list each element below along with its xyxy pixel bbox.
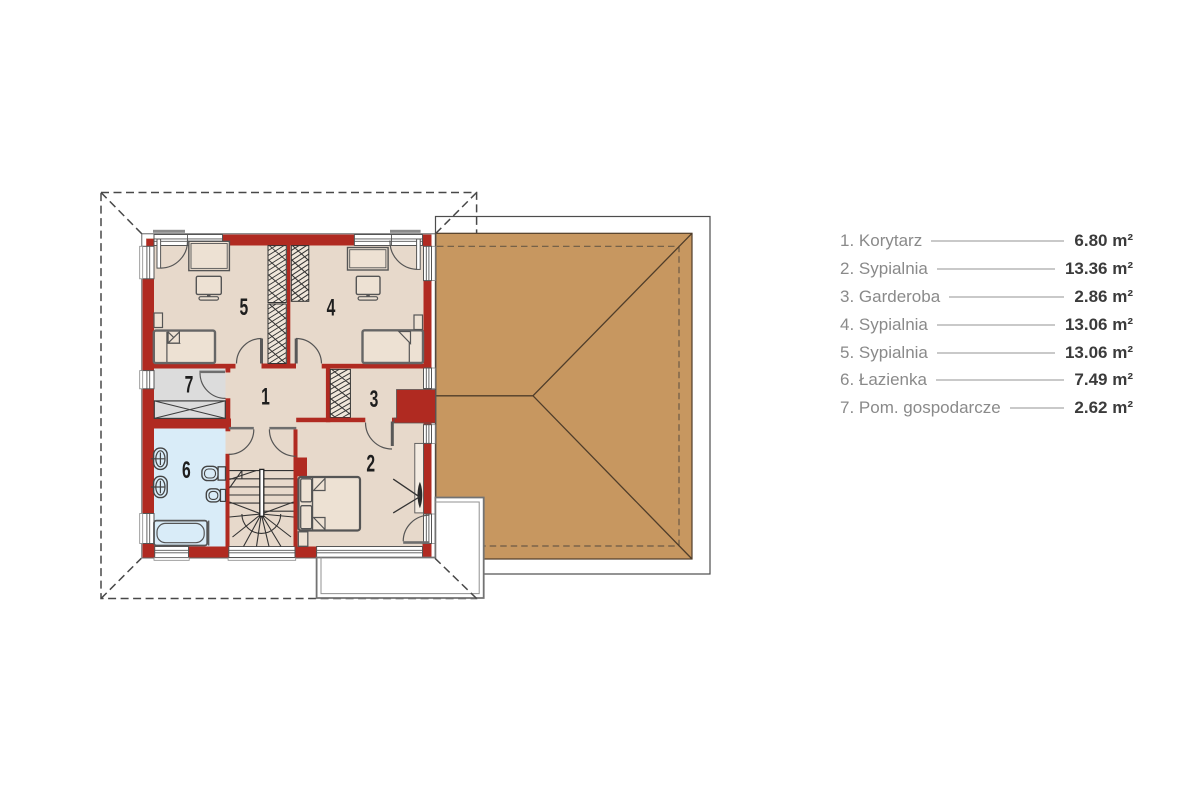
svg-text:6: 6 [182,456,191,483]
svg-text:2: 2 [366,450,375,477]
svg-text:4: 4 [327,294,336,321]
svg-text:1: 1 [261,383,270,410]
svg-text:3: 3 [370,385,379,412]
svg-text:5: 5 [239,293,248,320]
svg-text:7: 7 [185,371,194,398]
